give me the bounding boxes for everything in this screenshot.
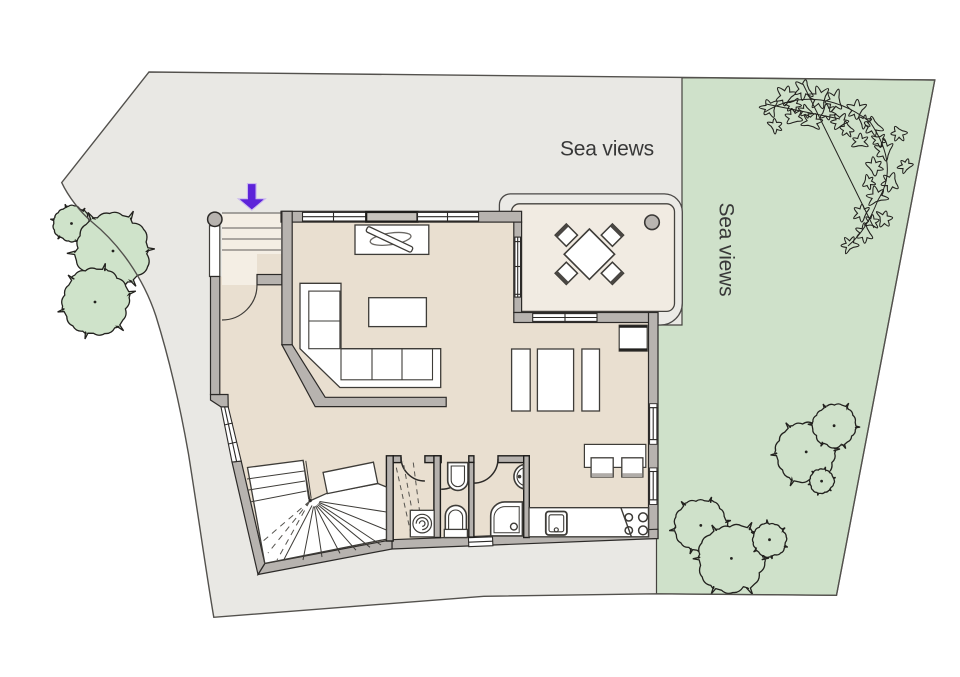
svg-text:Sea views: Sea views bbox=[560, 138, 654, 161]
svg-text:Sea views: Sea views bbox=[715, 203, 738, 297]
